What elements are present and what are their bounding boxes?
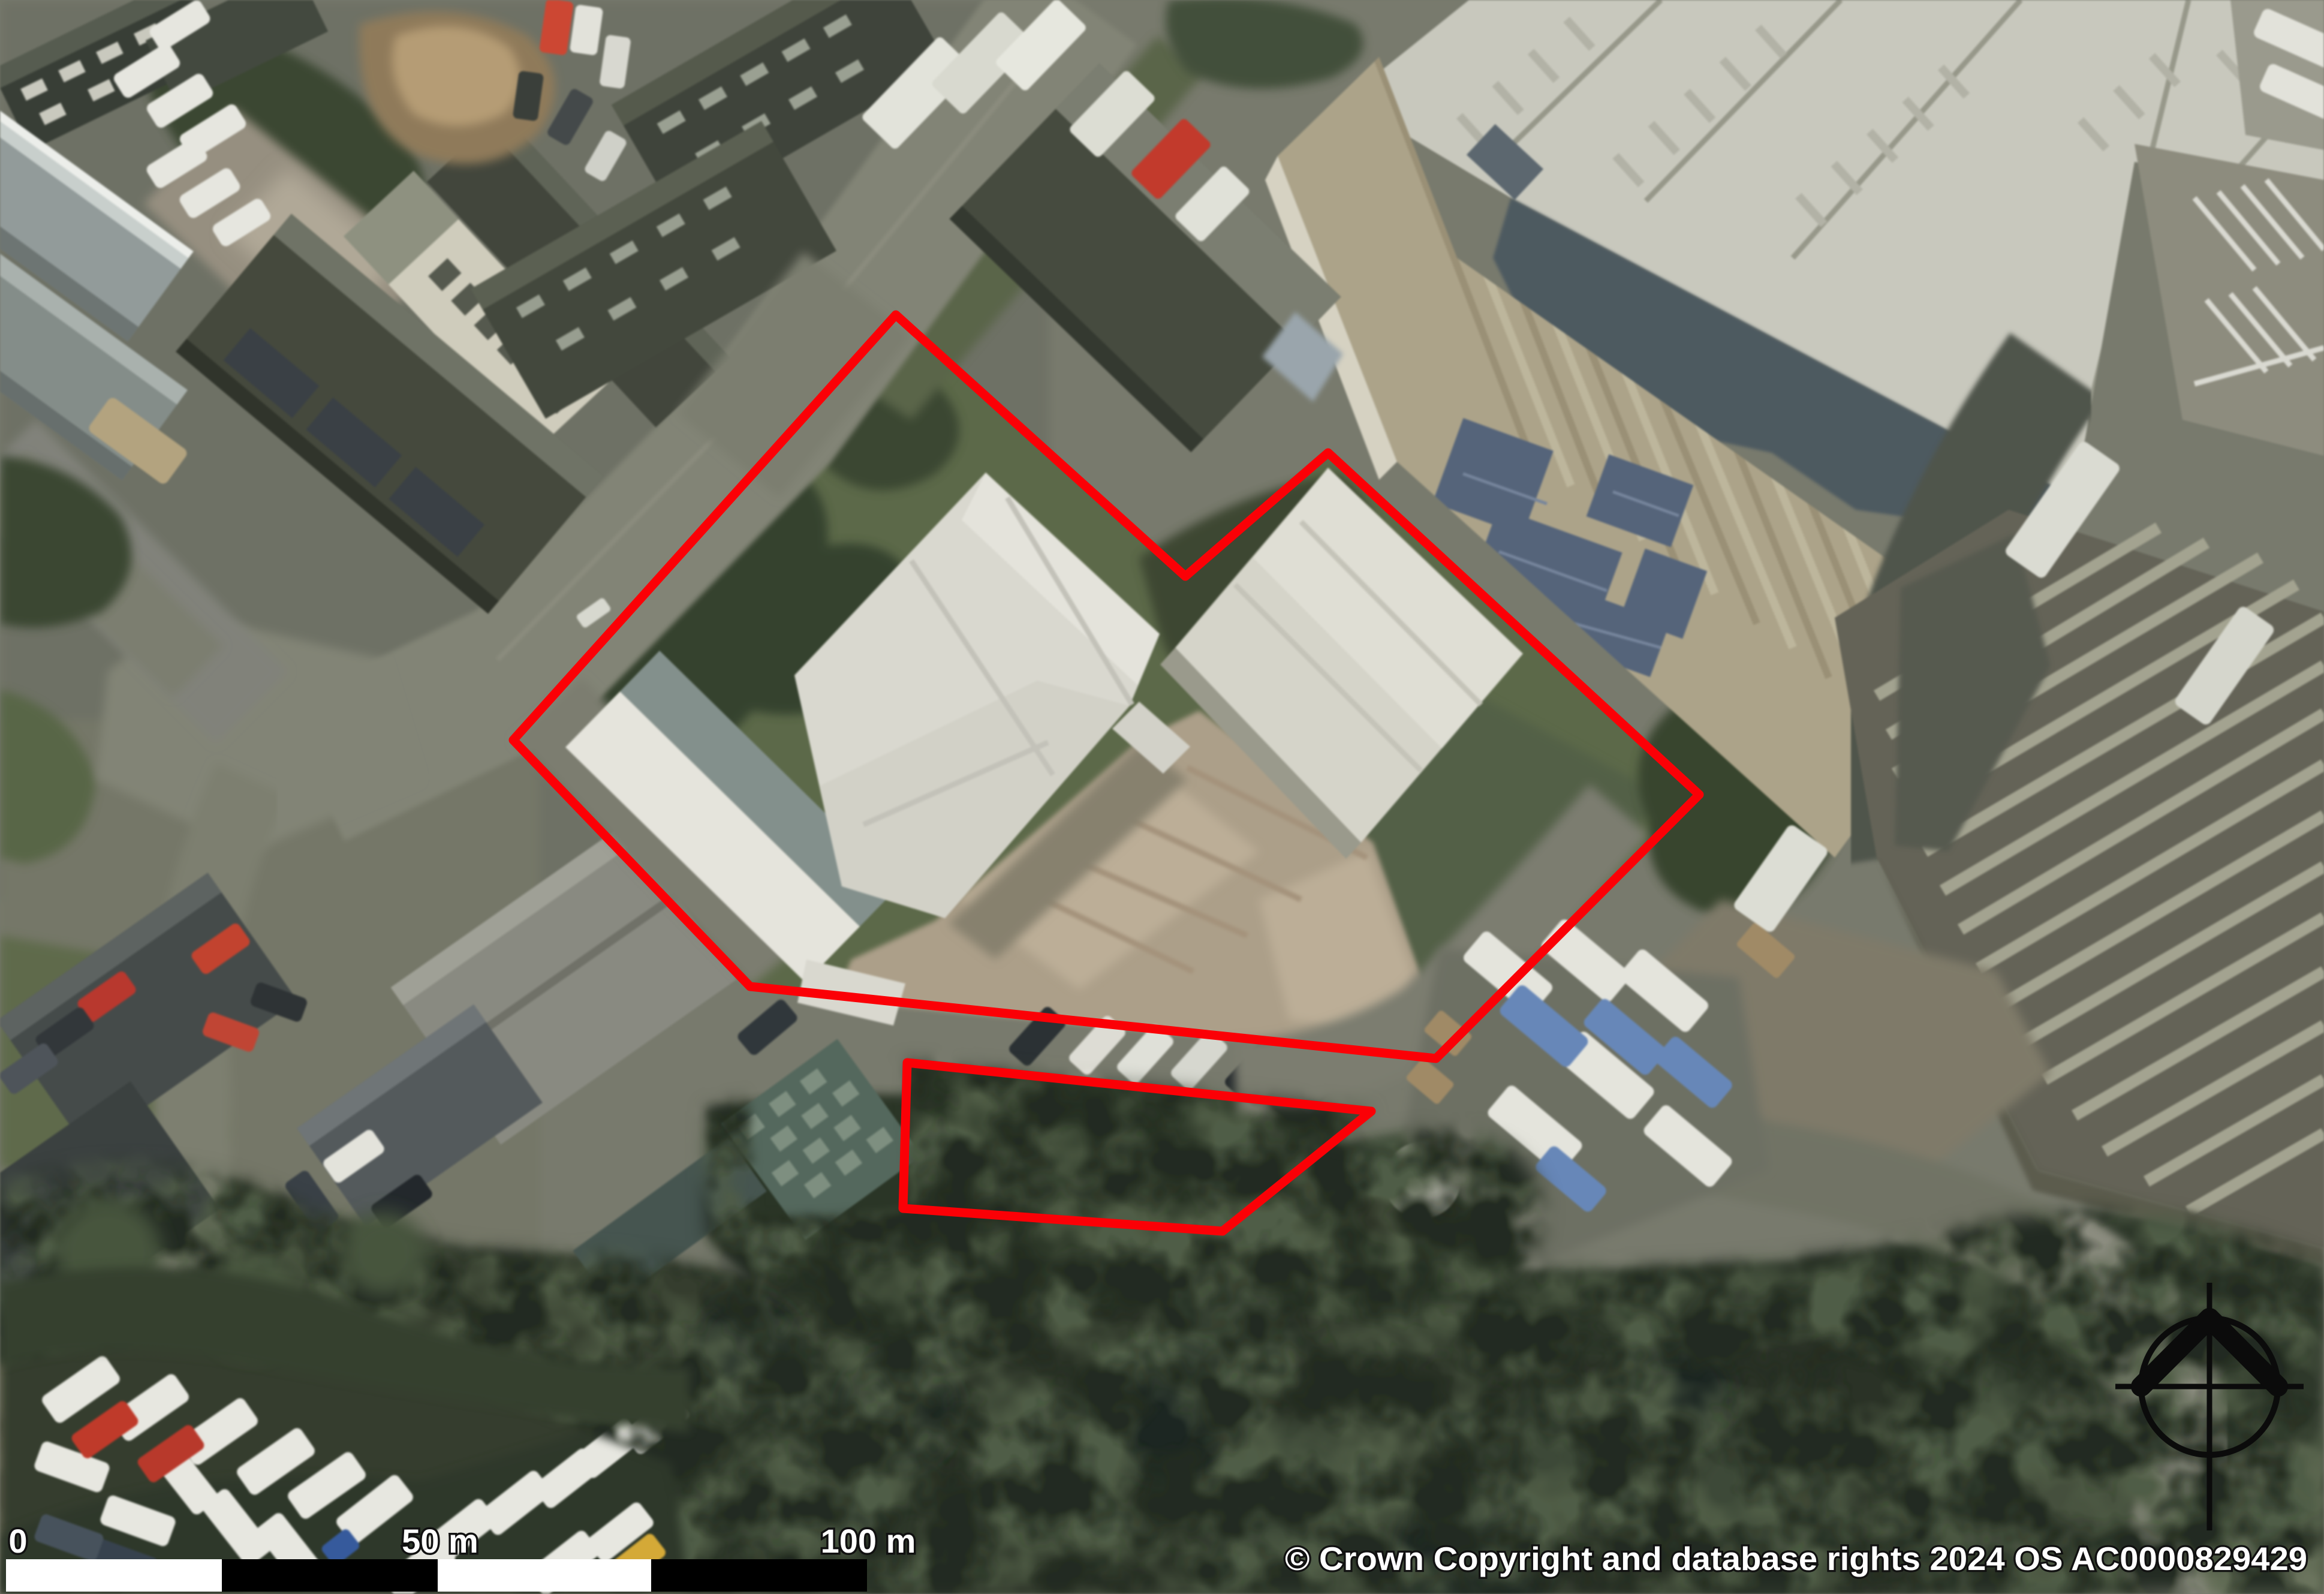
svg-text:© Crown Copyright and database: © Crown Copyright and database rights 20… [1285, 1540, 2307, 1577]
svg-text:50 m: 50 m [402, 1522, 478, 1560]
svg-text:0: 0 [8, 1522, 27, 1560]
svg-text:100 m: 100 m [821, 1522, 916, 1560]
